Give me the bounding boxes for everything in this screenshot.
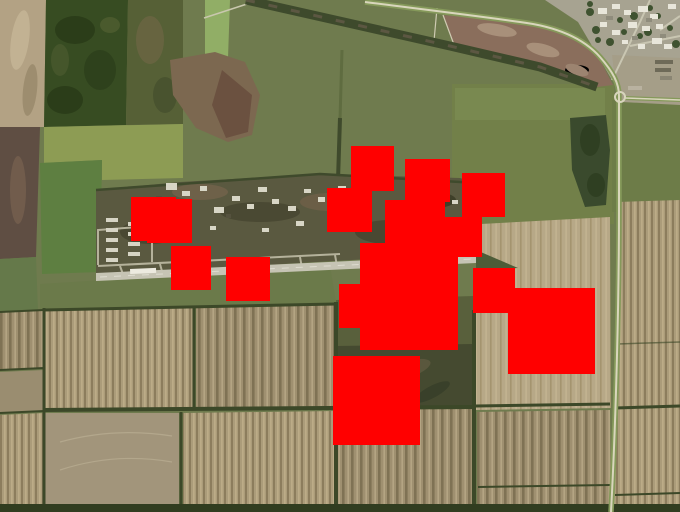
detection-box [147, 199, 192, 243]
detection-box [351, 146, 394, 191]
detection-box [226, 257, 270, 301]
detection-box [171, 246, 211, 290]
satellite-map[interactable] [0, 0, 680, 512]
detection-box [339, 284, 385, 328]
detection-box [405, 159, 450, 202]
detection-box [508, 288, 595, 374]
detection-overlays [0, 0, 680, 512]
detection-box [462, 173, 505, 217]
detection-box [385, 200, 445, 247]
detection-box [333, 356, 420, 445]
detection-box [327, 188, 372, 232]
